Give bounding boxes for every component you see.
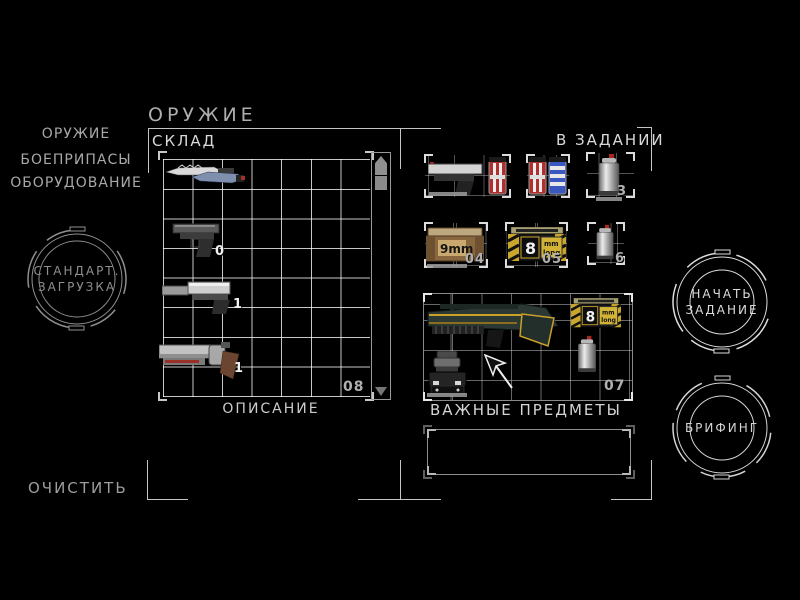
item-count: 1 bbox=[234, 361, 243, 376]
storage-total-count: 08 bbox=[343, 379, 364, 395]
top-frame-line bbox=[148, 128, 441, 129]
ammo-mm-label: mm bbox=[602, 309, 615, 316]
box-inner-corners bbox=[427, 429, 631, 475]
slot-count: 6 bbox=[615, 251, 625, 266]
top-center-tick bbox=[400, 128, 401, 169]
ammo-8-label: 8 bbox=[586, 309, 596, 325]
ammo-mm-label: mm bbox=[544, 240, 559, 248]
spray-can-icon[interactable] bbox=[573, 335, 601, 377]
up-arrow-icon[interactable] bbox=[375, 156, 387, 175]
important-items-header: ВАЖНЫЕ ПРЕДМЕТЫ bbox=[430, 401, 622, 419]
button-label-line2: ЗАДАНИЕ bbox=[685, 303, 758, 317]
item-count: 0 bbox=[215, 244, 224, 259]
clear-button[interactable]: ОЧИСТИТЬ bbox=[28, 479, 128, 497]
loadout-screen: ОРУЖИЕ ОРУЖИЕ БОЕПРИПАСЫ ОБОРУДОВАНИЕ СК… bbox=[0, 0, 800, 600]
ammo-8-label: 8 bbox=[525, 239, 536, 258]
button-label-line2: ЗАГРУЗКА bbox=[38, 280, 116, 294]
sidebar-item-equipment[interactable]: ОБОРУДОВАНИЕ bbox=[0, 175, 152, 191]
bottom-right-bracket-v bbox=[651, 460, 652, 500]
storage-header: СКЛАД bbox=[152, 132, 216, 150]
scrollbar-thumb[interactable] bbox=[375, 176, 387, 190]
start-mission-button[interactable]: НАЧАТЬ ЗАДАНИЕ bbox=[670, 250, 774, 354]
sidebar-item-ammo[interactable]: БОЕПРИПАСЫ bbox=[0, 152, 152, 168]
blue-magazine-icon[interactable] bbox=[548, 157, 567, 195]
description-label: ОПИСАНИЕ bbox=[196, 401, 346, 417]
sidebar-item-weapons[interactable]: ОРУЖИЕ bbox=[0, 126, 152, 142]
ammo-8mm-icon[interactable]: 8 mm long bbox=[571, 298, 621, 329]
page-title: ОРУЖИЕ bbox=[148, 104, 257, 126]
mouse-cursor-icon bbox=[484, 354, 514, 392]
camera-device-icon[interactable] bbox=[427, 351, 468, 395]
bottom-right-bracket-h bbox=[611, 499, 652, 500]
button-label-line1: НАЧАТЬ bbox=[691, 287, 752, 301]
item-shadow bbox=[596, 197, 622, 201]
bottom-center-tick bbox=[400, 460, 401, 500]
bottom-left-bracket-v bbox=[147, 460, 148, 500]
mission-pistol-icon[interactable] bbox=[428, 157, 486, 195]
mission-corner-line-h bbox=[637, 127, 652, 128]
storage-scrollbar[interactable] bbox=[371, 152, 391, 400]
item-count: 1 bbox=[233, 297, 242, 312]
item-shadow bbox=[427, 393, 467, 397]
bottom-left-bracket-h bbox=[147, 499, 188, 500]
mission-header: В ЗАДАНИИ bbox=[556, 131, 665, 149]
item-shadow bbox=[427, 264, 467, 268]
ammo-long-label: long bbox=[601, 317, 616, 324]
standard-loadout-button[interactable]: СТАНДАРТ. ЗАГРУЗКА bbox=[25, 227, 129, 331]
slot-count: 07 bbox=[604, 378, 625, 394]
knife-icon[interactable] bbox=[164, 156, 246, 192]
button-label-line1: СТАНДАРТ. bbox=[34, 264, 121, 278]
important-items-box[interactable] bbox=[427, 429, 631, 475]
red-magazine-icon[interactable] bbox=[528, 157, 547, 195]
slot-count: 04 bbox=[465, 252, 485, 267]
slot-count: 05 bbox=[542, 252, 562, 267]
rifle-icon[interactable] bbox=[426, 296, 563, 354]
down-arrow-icon[interactable] bbox=[375, 387, 387, 396]
briefing-button[interactable]: БРИФИНГ bbox=[670, 376, 774, 480]
item-shadow bbox=[429, 192, 467, 196]
silenced-pistol-icon[interactable] bbox=[162, 277, 242, 315]
button-label-line1: БРИФИНГ bbox=[685, 421, 759, 435]
red-magazine-icon[interactable] bbox=[488, 157, 507, 195]
